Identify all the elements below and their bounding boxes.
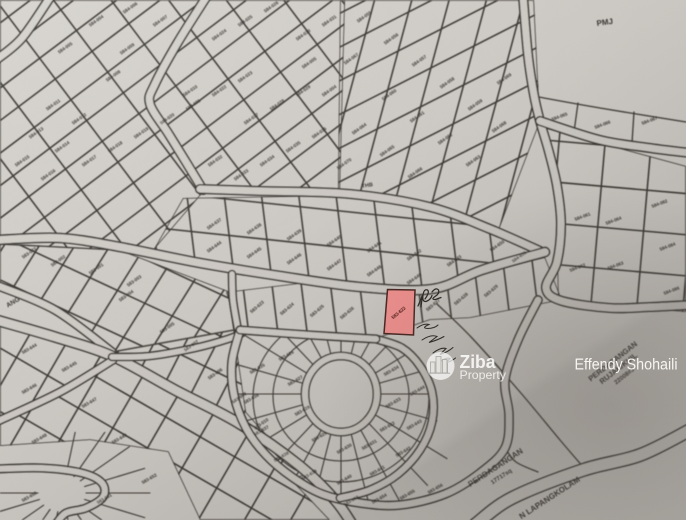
svg-text:Effendy Shohaili: Effendy Shohaili xyxy=(575,357,678,374)
svg-text:Property: Property xyxy=(460,368,507,382)
